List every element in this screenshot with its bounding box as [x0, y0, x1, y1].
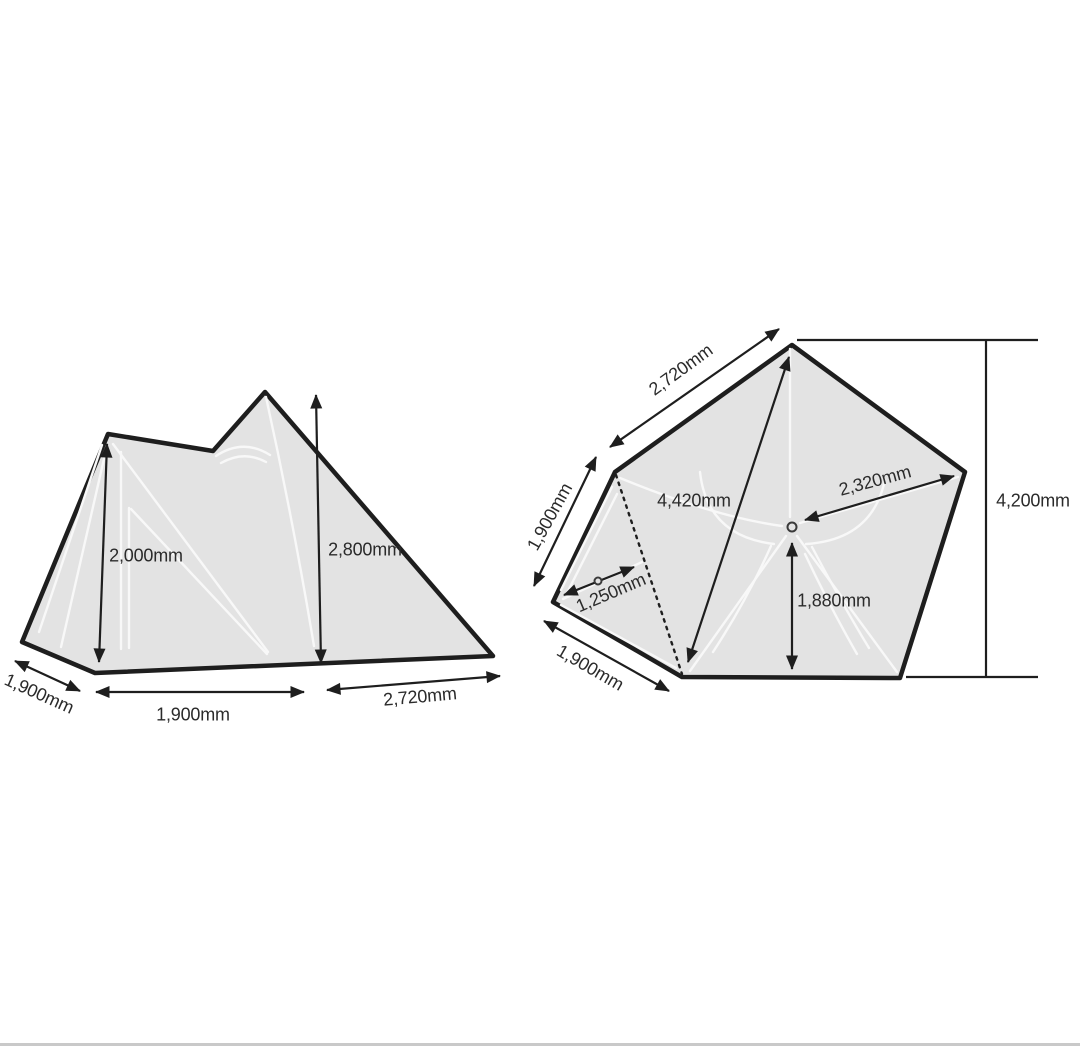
dim-label-side-peak-height: 2,800mm	[328, 540, 402, 561]
floor-plan-outline	[553, 345, 965, 678]
dim-label-side-floor-depth: 1,900mm	[156, 705, 230, 726]
dim-label-plan-overall-width: 4,200mm	[996, 491, 1070, 512]
tent-spec-sheet: 2,000mm 2,800mm 1,900mm 2,720mm 1,900mm …	[0, 0, 1080, 1050]
dim-label-plan-center-to-edge: 1,880mm	[797, 591, 871, 612]
porch-pole-marker	[595, 578, 602, 585]
side-view	[15, 392, 500, 692]
dim-label-plan-long-diagonal: 4,420mm	[657, 491, 731, 512]
dim-label-side-inner-height: 2,000mm	[109, 546, 183, 567]
floor-plan	[534, 329, 1038, 691]
center-pole-marker	[788, 523, 797, 532]
side-view-tent-outline	[22, 392, 493, 673]
bottom-divider	[0, 1043, 1080, 1046]
